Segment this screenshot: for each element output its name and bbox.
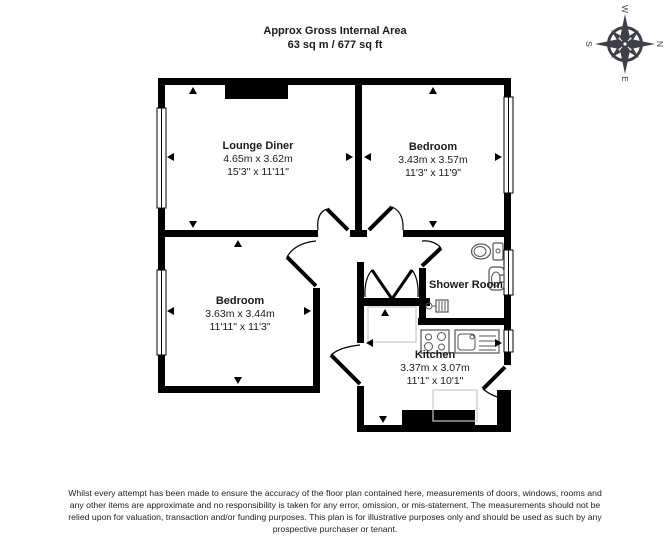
room-lounge-diner-label: Lounge Diner 4.65m x 3.62m 15'3" x 11'11… <box>223 140 295 178</box>
window-icon <box>504 250 513 295</box>
door-bedroom-1 <box>369 207 403 230</box>
room-shower-room-label: Shower Room <box>429 279 503 291</box>
room-size-metric: 3.37m x 3.07m <box>400 362 470 374</box>
compass-north-label: N <box>655 41 665 47</box>
disclaimer-line-4: prospective purchaser or tenant. <box>273 524 398 534</box>
compass-east-label: E <box>620 76 630 82</box>
window-icon <box>157 270 166 355</box>
room-bedroom-1-label: Bedroom 3.43m x 3.57m 11'3" x 11'9" <box>398 141 468 179</box>
disclaimer-line-2: any other items are approximate and no r… <box>70 500 601 510</box>
room-size-metric: 3.63m x 3.44m <box>205 308 275 320</box>
disclaimer-text: Whilst every attempt has been made to en… <box>68 488 602 534</box>
compass-west-label: W <box>620 5 630 13</box>
room-size-metric: 3.43m x 3.57m <box>398 154 468 166</box>
room-size-imperial: 11'3" x 11'9" <box>405 167 461 179</box>
kitchen-sink-icon <box>455 330 499 353</box>
room-kitchen-label: Kitchen 3.37m x 3.07m 11'1" x 10'1" <box>400 349 470 387</box>
room-name: Kitchen <box>415 349 456 361</box>
room-name: Shower Room <box>429 279 503 291</box>
door-shower-room <box>422 241 441 266</box>
window-icon <box>157 108 166 208</box>
window-icon <box>504 330 513 352</box>
door-kitchen <box>331 345 360 384</box>
room-name: Bedroom <box>216 295 265 307</box>
disclaimer-line-3: relied upon for valuation, transaction a… <box>68 512 602 522</box>
room-name: Bedroom <box>409 141 458 153</box>
window-icon <box>504 97 513 193</box>
toilet-icon <box>472 243 504 260</box>
compass-south-label: S <box>584 41 594 47</box>
compass-rose-icon: N E S W <box>584 5 665 82</box>
disclaimer-line-1: Whilst every attempt has been made to en… <box>68 488 602 498</box>
room-name: Lounge Diner <box>223 140 295 152</box>
floor-plan-page: Approx Gross Internal Area 63 sq m / 677… <box>0 0 670 543</box>
room-size-imperial: 15'3" x 11'11" <box>227 166 289 178</box>
room-bedroom-2-label: Bedroom 3.63m x 3.44m 11'11" x 11'3" <box>205 295 275 333</box>
room-size-metric: 4.65m x 3.62m <box>223 153 293 165</box>
title-line-1: Approx Gross Internal Area <box>263 25 407 37</box>
door-lounge <box>318 209 348 230</box>
door-bedroom-2 <box>287 241 316 286</box>
door-hall-cupboard <box>365 270 418 299</box>
floor-plan-canvas: Approx Gross Internal Area 63 sq m / 677… <box>0 0 670 543</box>
title-line-2: 63 sq m / 677 sq ft <box>288 39 383 51</box>
room-size-imperial: 11'11" x 11'3" <box>209 321 270 333</box>
room-size-imperial: 11'1" x 10'1" <box>407 375 464 387</box>
page-title: Approx Gross Internal Area 63 sq m / 677… <box>263 25 407 51</box>
